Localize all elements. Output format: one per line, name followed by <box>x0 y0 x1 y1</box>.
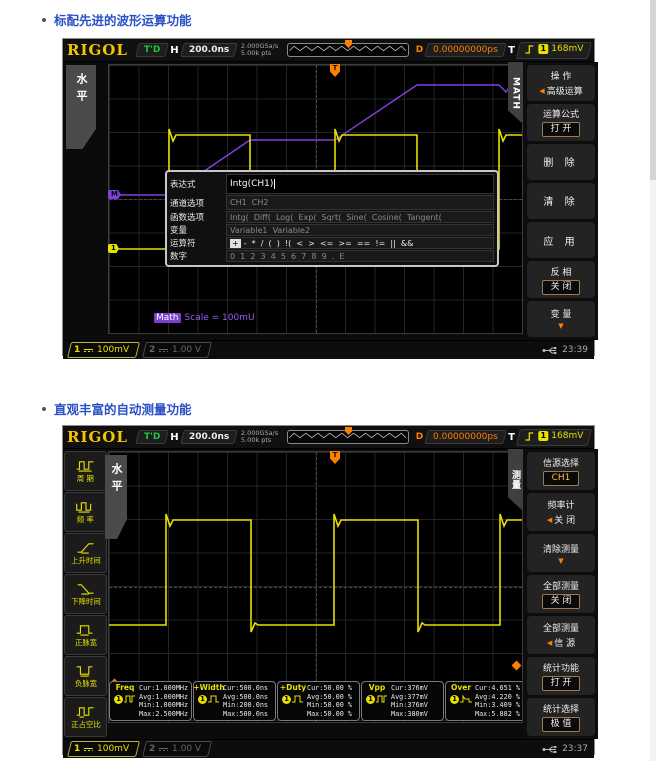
dc-coupling-icon <box>84 747 93 752</box>
menu-item-counter[interactable]: 频率计 ◀关 闭 <box>527 493 595 531</box>
scope2-bottom-bar: 1 100mV 2 1.00 V 23:37 <box>63 739 594 758</box>
delay-value[interactable]: 0.00000000ps <box>425 430 507 444</box>
scope2-soft-menu: 测量 信源选择 CH1 频率计 ◀关 闭 清除测量 ▼ 全部测量 关 闭 全部测… <box>523 449 598 739</box>
menu-item-formula[interactable]: 运算公式 打 开 <box>527 104 595 140</box>
timebase-value[interactable]: 200.0ns <box>180 43 238 57</box>
pulse-icon <box>292 694 304 704</box>
selected-operator[interactable]: + <box>230 239 241 248</box>
sidebar-item-pos-width[interactable]: 正脉宽 <box>64 615 107 655</box>
trigger-label: T <box>508 432 515 443</box>
dialog-row-label: 运算符 <box>170 237 222 249</box>
trigger-slope-icon <box>525 44 535 53</box>
dialog-row-label: 数字 <box>170 250 222 262</box>
scope1-top-bar: RIGOL T'D H 200.0ns 2.000GSa/s5.00k pts … <box>63 39 594 62</box>
rigol-logo: RIGOL <box>67 41 128 59</box>
expression-input[interactable]: Intg(CH1) <box>226 174 494 194</box>
sample-rate-block: 2.000GSa/s5.00k pts <box>241 43 278 57</box>
trigger-label: T <box>508 45 515 56</box>
oscilloscope-screenshot-measure: RIGOL T'D H 200.0ns 2.000GSa/s5.00k pts … <box>62 425 595 755</box>
measure-stats-bar: Freq 1 Cur:1.000MHz Avg:1.000MHz Min:1.0… <box>109 681 522 721</box>
ch2-status-tag[interactable]: 2 1.00 V <box>142 342 212 358</box>
clock-readout: 23:39 <box>562 345 588 355</box>
bullet-icon <box>42 407 46 411</box>
memory-position-bar[interactable] <box>287 43 409 57</box>
rise-time-icon <box>75 541 97 554</box>
ch1-status-tag[interactable]: 1 100mV <box>67 741 140 757</box>
scrollbar-thumb[interactable] <box>650 0 656 180</box>
menu-item-statistic-enable[interactable]: 统计功能 打 开 <box>527 657 595 695</box>
horizontal-label: H <box>170 432 178 443</box>
trigger-info[interactable]: 1 168mV <box>516 429 592 446</box>
math-expression-dialog: 表达式 Intg(CH1) 通道选项 CH1 CH2 函数选项 Intg( Di… <box>165 170 499 267</box>
stat-panel-overshoot[interactable]: Over 1 Cur:4.651 % Avg:4.220 % Min:3.409… <box>445 681 522 721</box>
function-options-field[interactable]: Intg( Diff( Log( Exp( Sqrt( Sine( Cosine… <box>226 211 494 223</box>
trigger-level-value: 168mV <box>551 44 583 54</box>
scope1-bottom-bar: 1 100mV 2 1.00 V 23:39 <box>63 340 594 359</box>
ch1-badge: 1 <box>366 695 375 704</box>
number-options-field[interactable]: 0 1 2 3 4 5 6 7 8 9 . E <box>226 250 494 262</box>
stat-panel-pos-width[interactable]: +Width 1 Cur:500.0ns Avg:500.0ns Min:200… <box>193 681 276 721</box>
pulse-icon <box>376 694 388 704</box>
pulse-icon <box>208 694 220 704</box>
menu-item-all-measure[interactable]: 全部测量 关 闭 <box>527 575 595 613</box>
delay-label: D <box>416 45 423 55</box>
math-scale-readout: Math Scale = 100mU <box>154 313 255 323</box>
scope1-main: 水平 T M 1 Math Scale = 100mU 表达式 Intg(CH1… <box>63 62 594 340</box>
period-icon <box>75 459 97 472</box>
usb-icon <box>542 745 558 754</box>
trigger-channel-badge: 1 <box>538 431 548 441</box>
ch1-badge: 1 <box>282 695 291 704</box>
ch2-status-tag[interactable]: 2 1.00 V <box>142 741 212 757</box>
fall-time-icon <box>75 582 97 595</box>
scope1-left-column: 水平 <box>63 62 108 340</box>
menu-item-variable[interactable]: 变 量 ▼ <box>527 301 595 337</box>
stat-panel-freq[interactable]: Freq 1 Cur:1.000MHz Avg:1.000MHz Min:1.0… <box>109 681 192 721</box>
sidebar-item-neg-width[interactable]: 负脉宽 <box>64 656 107 696</box>
memory-position-bar[interactable] <box>287 430 409 444</box>
trigger-channel-badge: 1 <box>538 44 548 54</box>
sidebar-item-rise-time[interactable]: 上升时间 <box>64 533 107 573</box>
neg-width-icon <box>75 664 97 677</box>
pulse-icon <box>124 694 136 704</box>
menu-item-clear-measure[interactable]: 清除测量 ▼ <box>527 534 595 572</box>
ch1-badge: 1 <box>450 695 459 704</box>
menu-item-statistic-select[interactable]: 统计选择 极 值 <box>527 698 595 736</box>
sidebar-item-period[interactable]: 周 期 <box>64 451 107 491</box>
dialog-row-label: 通道选项 <box>170 195 222 210</box>
trigger-status-badge: T'D <box>135 43 169 57</box>
oscilloscope-screenshot-math: RIGOL T'D H 200.0ns 2.000GSa/s5.00k pts … <box>62 38 595 356</box>
horizontal-tab[interactable]: 水平 <box>66 65 96 149</box>
stat-panel-pos-duty[interactable]: +Duty 1 Cur:50.00 % Avg:50.00 % Min:50.0… <box>277 681 360 721</box>
menu-item-clear[interactable]: 清 除 <box>527 183 595 219</box>
ch1-square-wave-trace <box>109 514 522 632</box>
menu-item-delete[interactable]: 删 除 <box>527 144 595 180</box>
menu-item-source-select[interactable]: 信源选择 CH1 <box>527 452 595 490</box>
menu-item-invert[interactable]: 反 相 关 闭 <box>527 261 595 297</box>
scope1-display-grid: T M 1 Math Scale = 100mU 表达式 Intg(CH1) 通… <box>108 64 523 334</box>
dialog-row-label: 函数选项 <box>170 211 222 223</box>
scope2-top-bar: RIGOL T'D H 200.0ns 2.000GSa/s5.00k pts … <box>63 426 594 449</box>
dialog-row-label: 变量 <box>170 224 222 236</box>
pos-duty-icon <box>75 705 97 718</box>
dc-coupling-icon <box>160 348 169 353</box>
ch1-badge: 1 <box>198 695 207 704</box>
sample-rate-block: 2.000GSa/s5.00k pts <box>241 430 278 444</box>
dialog-row-label: 表达式 <box>170 174 222 194</box>
frequency-icon <box>75 500 97 513</box>
ch1-status-tag[interactable]: 1 100mV <box>67 342 140 358</box>
text-cursor <box>274 179 275 189</box>
trigger-info[interactable]: 1 168mV <box>516 42 592 59</box>
down-arrow-icon: ▼ <box>558 322 563 330</box>
sidebar-item-frequency[interactable]: 频 率 <box>64 492 107 532</box>
section-2-header: 直观丰富的自动测量功能 <box>42 399 192 418</box>
section-1-header: 标配先进的波形运算功能 <box>42 10 192 29</box>
scope1-soft-menu: MATH 操 作 ◀高级运算 运算公式 打 开 删 除 清 除 应 用 反 相 … <box>523 62 598 340</box>
usb-icon <box>542 346 558 355</box>
horizontal-label: H <box>170 45 178 56</box>
ch1-badge: 1 <box>114 695 123 704</box>
menu-item-all-measure-source[interactable]: 全部测量 ◀信 源 <box>527 616 595 654</box>
section-2-title: 直观丰富的自动测量功能 <box>54 399 192 418</box>
clock-readout: 23:37 <box>562 744 588 754</box>
variable-options-field[interactable]: Variable1 Variable2 <box>226 224 494 236</box>
menu-item-operation[interactable]: 操 作 ◀高级运算 <box>527 65 595 101</box>
left-arrow-icon: ◀ <box>539 87 544 95</box>
delay-label: D <box>416 432 423 442</box>
pulse-icon <box>460 694 472 704</box>
trigger-slope-icon <box>525 431 535 440</box>
down-arrow-icon: ▼ <box>558 557 563 565</box>
stat-panel-vpp[interactable]: Vpp 1 Cur:376mV Avg:377mV Min:376mV Max:… <box>361 681 444 721</box>
operator-options-field[interactable]: +- * / ( ) !( < > <= >= == != || && <box>226 237 494 249</box>
scope2-main: 周 期 频 率 上升时间 下降时间 正脉宽 负脉宽 <box>63 449 594 739</box>
scope2-display-grid: 水平 T Freq 1 Cur:1.000MHz Avg:1.000MHz Mi… <box>108 451 523 723</box>
sidebar-item-pos-duty[interactable]: 正占空比 <box>64 697 107 737</box>
trigger-level-value: 168mV <box>551 431 583 441</box>
measure-sidebar: 周 期 频 率 上升时间 下降时间 正脉宽 负脉宽 <box>63 449 108 739</box>
dc-coupling-icon <box>84 348 93 353</box>
channel-options-field[interactable]: CH1 CH2 <box>226 195 494 210</box>
delay-value[interactable]: 0.00000000ps <box>425 43 507 57</box>
menu-item-apply[interactable]: 应 用 <box>527 222 595 258</box>
bullet-icon <box>42 18 46 22</box>
page-scrollbar[interactable] <box>650 0 656 761</box>
sidebar-item-fall-time[interactable]: 下降时间 <box>64 574 107 614</box>
left-arrow-icon: ◀ <box>547 516 552 524</box>
dc-coupling-icon <box>160 747 169 752</box>
pos-width-icon <box>75 623 97 636</box>
rigol-logo: RIGOL <box>67 428 128 446</box>
trigger-status-badge: T'D <box>135 430 169 444</box>
left-arrow-icon: ◀ <box>547 639 552 647</box>
section-1-title: 标配先进的波形运算功能 <box>54 10 192 29</box>
timebase-value[interactable]: 200.0ns <box>180 430 238 444</box>
